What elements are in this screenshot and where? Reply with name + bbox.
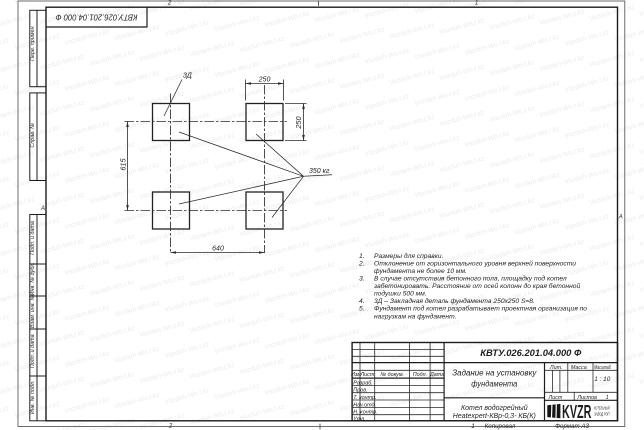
svg-text:Vozduh-Wo.t.kz: Vozduh-Wo.t.kz — [189, 86, 236, 105]
svg-text:Vozduh-Wo.t.kz: Vozduh-Wo.t.kz — [489, 13, 536, 32]
svg-text:Vozduh-Wo.t.kz: Vozduh-Wo.t.kz — [514, 218, 561, 237]
svg-text:Vozduh-Wo.t.kz: Vozduh-Wo.t.kz — [589, 280, 636, 299]
svg-text:Масса: Масса — [571, 365, 587, 371]
svg-text:Vozduh-Wo.t.kz: Vozduh-Wo.t.kz — [364, 47, 411, 66]
svg-text:Vozduh-Wo.t.kz: Vozduh-Wo.t.kz — [64, 28, 111, 47]
svg-text:Vozduh-Wo.t.kz: Vozduh-Wo.t.kz — [214, 383, 261, 402]
svg-text:Vozduh-Wo.t.kz: Vozduh-Wo.t.kz — [39, 421, 86, 430]
svg-text:Vozduh-Wo.t.kz: Vozduh-Wo.t.kz — [489, 197, 536, 216]
svg-text:Перв. примен.: Перв. примен. — [30, 25, 36, 61]
svg-text:Vozduh-Wo.t.kz: Vozduh-Wo.t.kz — [564, 121, 611, 140]
svg-text:В случае отсутствия бетонного: В случае отсутствия бетонного пола, площ… — [374, 275, 567, 283]
svg-text:Vozduh-Wo.t.kz: Vozduh-Wo.t.kz — [239, 311, 286, 330]
svg-text:640: 640 — [212, 245, 224, 252]
svg-text:Vozduh-Wo.t.kz: Vozduh-Wo.t.kz — [489, 243, 536, 262]
svg-text:Vozduh-Wo.t.kz: Vozduh-Wo.t.kz — [614, 71, 644, 90]
svg-text:Vozduh-Wo.t.kz: Vozduh-Wo.t.kz — [589, 142, 636, 161]
svg-text:3Д – Закладная деталь фундамен: 3Д – Закладная деталь фундамента 250х250… — [374, 297, 535, 305]
svg-text:3Д: 3Д — [183, 73, 192, 80]
svg-text:1: 1 — [606, 395, 609, 401]
svg-text:Vozduh-Wo.t.kz: Vozduh-Wo.t.kz — [139, 228, 186, 247]
svg-text:Vozduh-Wo.t.kz: Vozduh-Wo.t.kz — [339, 118, 386, 137]
svg-text:2: 2 — [167, 1, 172, 7]
svg-text:Пров.: Пров. — [353, 388, 367, 394]
svg-text:Vozduh-Wo.t.kz: Vozduh-Wo.t.kz — [539, 192, 586, 211]
svg-text:Vozduh-Wo.t.kz: Vozduh-Wo.t.kz — [114, 254, 161, 273]
svg-text:Vozduh-Wo.t.kz: Vozduh-Wo.t.kz — [564, 29, 611, 48]
svg-text:Vozduh-Wo.t.kz: Vozduh-Wo.t.kz — [489, 59, 536, 78]
svg-text:Котел водогрейный: Котел водогрейный — [461, 404, 528, 412]
svg-text:Vozduh-Wo.t.kz: Vozduh-Wo.t.kz — [64, 350, 111, 369]
svg-text:Vozduh-Wo.t.kz: Vozduh-Wo.t.kz — [114, 116, 161, 135]
svg-text:Vozduh-Wo.t.kz: Vozduh-Wo.t.kz — [0, 37, 11, 56]
svg-text:Vozduh-Wo.t.kz: Vozduh-Wo.t.kz — [414, 181, 461, 200]
svg-text:Нач.отд.: Нач.отд. — [353, 402, 376, 408]
svg-text:Vozduh-Wo.t.kz: Vozduh-Wo.t.kz — [639, 321, 644, 340]
svg-text:Vozduh-Wo.t.kz: Vozduh-Wo.t.kz — [339, 348, 386, 367]
svg-text:фундамента: фундамента — [471, 378, 517, 388]
svg-text:Vozduh-Wo.t.kz: Vozduh-Wo.t.kz — [114, 300, 161, 319]
svg-text:Vozduh-Wo.t.kz: Vozduh-Wo.t.kz — [264, 240, 311, 259]
svg-text:Vozduh-Wo.t.kz: Vozduh-Wo.t.kz — [414, 227, 461, 246]
svg-text:Формат А3: Формат А3 — [555, 423, 589, 430]
svg-text:Vozduh-Wo.t.kz: Vozduh-Wo.t.kz — [139, 136, 186, 155]
svg-text:Vozduh-Wo.t.kz: Vozduh-Wo.t.kz — [139, 274, 186, 293]
svg-text:Vozduh-Wo.t.kz: Vozduh-Wo.t.kz — [189, 362, 236, 381]
svg-text:Vozduh-Wo.t.kz: Vozduh-Wo.t.kz — [214, 153, 261, 172]
svg-text:Vozduh-Wo.t.kz: Vozduh-Wo.t.kz — [639, 0, 644, 18]
svg-text:Vozduh-Wo.t.kz: Vozduh-Wo.t.kz — [314, 328, 361, 347]
svg-text:Vozduh-Wo.t.kz: Vozduh-Wo.t.kz — [114, 70, 161, 89]
svg-text:Vozduh-Wo.t.kz: Vozduh-Wo.t.kz — [289, 307, 336, 326]
svg-text:1: 1 — [475, 1, 478, 7]
svg-text:250: 250 — [258, 76, 271, 83]
svg-text:Vozduh-Wo.t.kz: Vozduh-Wo.t.kz — [314, 98, 361, 117]
svg-text:Дата: Дата — [429, 372, 444, 378]
svg-text:Vozduh-Wo.t.kz: Vozduh-Wo.t.kz — [514, 34, 561, 53]
svg-text:Vozduh-Wo.t.kz: Vozduh-Wo.t.kz — [164, 387, 211, 406]
svg-text:Vozduh-Wo.t.kz: Vozduh-Wo.t.kz — [539, 100, 586, 119]
svg-text:Vozduh-Wo.t.kz: Vozduh-Wo.t.kz — [364, 1, 411, 20]
svg-text:Vozduh-Wo.t.kz: Vozduh-Wo.t.kz — [614, 117, 644, 136]
svg-text:Vozduh-Wo.t.kz: Vozduh-Wo.t.kz — [64, 212, 111, 231]
svg-text:Vozduh-Wo.t.kz: Vozduh-Wo.t.kz — [264, 378, 311, 397]
svg-text:Подп. и дата: Подп. и дата — [30, 221, 36, 255]
svg-text:Vozduh-Wo.t.kz: Vozduh-Wo.t.kz — [389, 68, 436, 87]
svg-text:Vozduh-Wo.t.kz: Vozduh-Wo.t.kz — [189, 132, 236, 151]
svg-text:Vozduh-Wo.t.kz: Vozduh-Wo.t.kz — [114, 24, 161, 43]
svg-text:Vozduh-Wo.t.kz: Vozduh-Wo.t.kz — [589, 50, 636, 69]
svg-text:Vozduh-Wo.t.kz: Vozduh-Wo.t.kz — [639, 91, 644, 110]
svg-text:Vozduh-Wo.t.kz: Vozduh-Wo.t.kz — [114, 392, 161, 411]
svg-text:Vozduh-Wo.t.kz: Vozduh-Wo.t.kz — [639, 183, 644, 202]
svg-text:KVZR: KVZR — [562, 402, 592, 422]
svg-text:Vozduh-Wo.t.kz: Vozduh-Wo.t.kz — [489, 105, 536, 124]
svg-text:Vozduh-Wo.t.kz: Vozduh-Wo.t.kz — [0, 313, 11, 332]
svg-text:Vozduh-Wo.t.kz: Vozduh-Wo.t.kz — [189, 40, 236, 59]
svg-text:фундамента не более 10 мм.: фундамента не более 10 мм. — [374, 267, 467, 275]
svg-text:Vozduh-Wo.t.kz: Vozduh-Wo.t.kz — [389, 160, 436, 179]
svg-text:Vozduh-Wo.t.kz: Vozduh-Wo.t.kz — [264, 56, 311, 75]
svg-text:Копировал: Копировал — [485, 423, 516, 430]
svg-text:Vozduh-Wo.t.kz: Vozduh-Wo.t.kz — [364, 185, 411, 204]
svg-text:Vozduh-Wo.t.kz: Vozduh-Wo.t.kz — [364, 139, 411, 158]
svg-text:Vozduh-Wo.t.kz: Vozduh-Wo.t.kz — [139, 0, 186, 17]
svg-text:Vozduh-Wo.t.kz: Vozduh-Wo.t.kz — [89, 417, 136, 430]
svg-text:Vozduh-Wo.t.kz: Vozduh-Wo.t.kz — [439, 109, 486, 128]
svg-text:Взам. инв. №: Взам. инв. № — [30, 294, 36, 328]
svg-text:Vozduh-Wo.t.kz: Vozduh-Wo.t.kz — [389, 344, 436, 363]
svg-text:Vozduh-Wo.t.kz: Vozduh-Wo.t.kz — [289, 31, 336, 50]
svg-text:Подп.: Подп. — [413, 372, 427, 378]
svg-text:Vozduh-Wo.t.kz: Vozduh-Wo.t.kz — [414, 319, 461, 338]
svg-text:Vozduh-Wo.t.kz: Vozduh-Wo.t.kz — [314, 190, 361, 209]
svg-text:Vozduh-Wo.t.kz: Vozduh-Wo.t.kz — [339, 164, 386, 183]
svg-text:КОТЕЛЬНЫЙ: КОТЕЛЬНЫЙ — [594, 405, 610, 410]
svg-text:Лист: Лист — [359, 372, 374, 378]
svg-text:Vozduh-Wo.t.kz: Vozduh-Wo.t.kz — [464, 0, 511, 11]
svg-text:350 кг: 350 кг — [309, 168, 330, 175]
svg-text:Vozduh-Wo.t.kz: Vozduh-Wo.t.kz — [289, 399, 336, 418]
svg-text:Отклонение от горизонтального: Отклонение от горизонтального уровня вер… — [374, 259, 576, 267]
svg-text:Vozduh-Wo.t.kz: Vozduh-Wo.t.kz — [389, 114, 436, 133]
svg-text:Vozduh-Wo.t.kz: Vozduh-Wo.t.kz — [164, 249, 211, 268]
svg-text:Размеры для справки.: Размеры для справки. — [374, 252, 444, 260]
svg-text:Vozduh-Wo.t.kz: Vozduh-Wo.t.kz — [239, 357, 286, 376]
svg-text:Инв. № дубл.: Инв. № дубл. — [30, 262, 36, 295]
svg-text:Vozduh-Wo.t.kz: Vozduh-Wo.t.kz — [214, 199, 261, 218]
svg-text:Vozduh-Wo.t.kz: Vozduh-Wo.t.kz — [614, 25, 644, 44]
svg-text:А: А — [618, 215, 623, 221]
svg-text:Vozduh-Wo.t.kz: Vozduh-Wo.t.kz — [89, 141, 136, 160]
svg-text:Vozduh-Wo.t.kz: Vozduh-Wo.t.kz — [289, 215, 336, 234]
svg-text:Vozduh-Wo.t.kz: Vozduh-Wo.t.kz — [639, 367, 644, 386]
svg-text:Vozduh-Wo.t.kz: Vozduh-Wo.t.kz — [339, 26, 386, 45]
svg-text:Vozduh-Wo.t.kz: Vozduh-Wo.t.kz — [339, 210, 386, 229]
svg-text:Vozduh-Wo.t.kz: Vozduh-Wo.t.kz — [539, 8, 586, 27]
svg-text:Vozduh-Wo.t.kz: Vozduh-Wo.t.kz — [214, 107, 261, 126]
svg-text:Vozduh-Wo.t.kz: Vozduh-Wo.t.kz — [0, 267, 11, 286]
svg-text:5.: 5. — [359, 306, 365, 313]
svg-text:Vozduh-Wo.t.kz: Vozduh-Wo.t.kz — [589, 96, 636, 115]
svg-text:Vozduh-Wo.t.kz: Vozduh-Wo.t.kz — [189, 316, 236, 335]
svg-text:Подп. и дата: Подп. и дата — [30, 334, 36, 368]
svg-text:Vozduh-Wo.t.kz: Vozduh-Wo.t.kz — [214, 61, 261, 80]
svg-text:Vozduh-Wo.t.kz: Vozduh-Wo.t.kz — [314, 236, 361, 255]
svg-text:Vozduh-Wo.t.kz: Vozduh-Wo.t.kz — [89, 279, 136, 298]
svg-text:Задание на установку: Задание на установку — [452, 367, 537, 377]
svg-text:Vozduh-Wo.t.kz: Vozduh-Wo.t.kz — [464, 222, 511, 241]
svg-text:3.: 3. — [359, 276, 365, 283]
svg-text:Vozduh-Wo.t.kz: Vozduh-Wo.t.kz — [514, 80, 561, 99]
svg-text:Vozduh-Wo.t.kz: Vozduh-Wo.t.kz — [564, 75, 611, 94]
svg-text:Vozduh-Wo.t.kz: Vozduh-Wo.t.kz — [464, 130, 511, 149]
svg-text:Vozduh-Wo.t.kz: Vozduh-Wo.t.kz — [289, 77, 336, 96]
svg-text:Vozduh-Wo.t.kz: Vozduh-Wo.t.kz — [414, 135, 461, 154]
svg-text:Vozduh-Wo.t.kz: Vozduh-Wo.t.kz — [0, 129, 11, 148]
svg-text:1.: 1. — [359, 253, 365, 260]
svg-text:Масштаб: Масштаб — [594, 365, 611, 371]
svg-text:Утв.: Утв. — [352, 416, 365, 422]
svg-text:Vozduh-Wo.t.kz: Vozduh-Wo.t.kz — [89, 187, 136, 206]
svg-text:Vozduh-Wo.t.kz: Vozduh-Wo.t.kz — [239, 403, 286, 422]
svg-text:Фундамент под котел разрабатыв: Фундамент под котел разрабатывает проект… — [374, 305, 587, 313]
svg-text:Vozduh-Wo.t.kz: Vozduh-Wo.t.kz — [639, 229, 644, 248]
svg-text:подушки 500 мм.: подушки 500 мм. — [374, 290, 427, 298]
svg-text:Vozduh-Wo.t.kz: Vozduh-Wo.t.kz — [289, 353, 336, 372]
svg-text:Vozduh-Wo.t.kz: Vozduh-Wo.t.kz — [564, 167, 611, 186]
svg-text:Vozduh-Wo.t.kz: Vozduh-Wo.t.kz — [414, 89, 461, 108]
svg-text:Vozduh-Wo.t.kz: Vozduh-Wo.t.kz — [314, 282, 361, 301]
svg-text:Vozduh-Wo.t.kz: Vozduh-Wo.t.kz — [364, 231, 411, 250]
svg-text:Справ. №: Справ. № — [30, 123, 36, 148]
svg-text:Vozduh-Wo.t.kz: Vozduh-Wo.t.kz — [414, 43, 461, 62]
svg-text:Vozduh-Wo.t.kz: Vozduh-Wo.t.kz — [64, 396, 111, 415]
svg-text:Vozduh-Wo.t.kz: Vozduh-Wo.t.kz — [439, 63, 486, 82]
svg-text:Vozduh-Wo.t.kz: Vozduh-Wo.t.kz — [614, 255, 644, 274]
svg-text:Т. контр.: Т. контр. — [353, 395, 376, 401]
svg-text:КВТУ.026.201.04.000 Ф: КВТУ.026.201.04.000 Ф — [55, 13, 137, 23]
svg-text:Лит.: Лит. — [549, 365, 563, 371]
svg-text:ЗАВОД РЭП: ЗАВОД РЭП — [594, 411, 610, 416]
svg-text:Vozduh-Wo.t.kz: Vozduh-Wo.t.kz — [114, 346, 161, 365]
svg-text:Vozduh-Wo.t.kz: Vozduh-Wo.t.kz — [439, 201, 486, 220]
svg-text:Инв. № подл.: Инв. № подл. — [30, 381, 36, 414]
svg-text:Vozduh-Wo.t.kz: Vozduh-Wo.t.kz — [339, 72, 386, 91]
svg-text:Vozduh-Wo.t.kz: Vozduh-Wo.t.kz — [89, 233, 136, 252]
svg-text:Vozduh-Wo.t.kz: Vozduh-Wo.t.kz — [439, 155, 486, 174]
svg-text:Vozduh-Wo.t.kz: Vozduh-Wo.t.kz — [464, 314, 511, 333]
svg-text:Vozduh-Wo.t.kz: Vozduh-Wo.t.kz — [264, 286, 311, 305]
svg-text:Vozduh-Wo.t.kz: Vozduh-Wo.t.kz — [264, 332, 311, 351]
svg-text:Vozduh-Wo.t.kz: Vozduh-Wo.t.kz — [189, 178, 236, 197]
svg-text:250: 250 — [294, 115, 303, 129]
svg-text:1: 1 — [471, 423, 474, 430]
svg-text:Vozduh-Wo.t.kz: Vozduh-Wo.t.kz — [639, 275, 644, 294]
svg-text:4.: 4. — [359, 298, 365, 305]
svg-text:Vozduh-Wo.t.kz: Vozduh-Wo.t.kz — [139, 44, 186, 63]
svg-text:Vozduh-Wo.t.kz: Vozduh-Wo.t.kz — [189, 408, 236, 427]
svg-text:Vozduh-Wo.t.kz: Vozduh-Wo.t.kz — [514, 172, 561, 191]
svg-text:Vozduh-Wo.t.kz: Vozduh-Wo.t.kz — [464, 176, 511, 195]
svg-text:Vozduh-Wo.t.kz: Vozduh-Wo.t.kz — [539, 330, 586, 349]
svg-text:Vozduh-Wo.t.kz: Vozduh-Wo.t.kz — [464, 84, 511, 103]
svg-text:Vozduh-Wo.t.kz: Vozduh-Wo.t.kz — [0, 405, 11, 424]
svg-text:Vozduh-Wo.t.kz: Vozduh-Wo.t.kz — [589, 234, 636, 253]
svg-text:Vozduh-Wo.t.kz: Vozduh-Wo.t.kz — [439, 17, 486, 36]
svg-text:Vozduh-Wo.t.kz: Vozduh-Wo.t.kz — [264, 10, 311, 29]
svg-text:Vozduh-Wo.t.kz: Vozduh-Wo.t.kz — [564, 213, 611, 232]
svg-text:Vozduh-Wo.t.kz: Vozduh-Wo.t.kz — [189, 0, 236, 13]
svg-text:Vozduh-Wo.t.kz: Vozduh-Wo.t.kz — [89, 371, 136, 390]
svg-text:№ докум.: № докум. — [380, 372, 404, 378]
svg-text:Vozduh-Wo.t.kz: Vozduh-Wo.t.kz — [464, 38, 511, 57]
svg-text:Vozduh-Wo.t.kz: Vozduh-Wo.t.kz — [639, 45, 644, 64]
svg-text:Vozduh-Wo.t.kz: Vozduh-Wo.t.kz — [239, 265, 286, 284]
svg-text:Vozduh-Wo.t.kz: Vozduh-Wo.t.kz — [89, 95, 136, 114]
svg-text:1 : 10: 1 : 10 — [594, 376, 610, 383]
svg-text:Vozduh-Wo.t.kz: Vozduh-Wo.t.kz — [89, 49, 136, 68]
svg-text:Vozduh-Wo.t.kz: Vozduh-Wo.t.kz — [214, 15, 261, 34]
svg-text:Vozduh-Wo.t.kz: Vozduh-Wo.t.kz — [364, 323, 411, 342]
svg-text:КВТУ.026.201.04.000 Ф: КВТУ.026.201.04.000 Ф — [480, 348, 581, 359]
svg-text:Vozduh-Wo.t.kz: Vozduh-Wo.t.kz — [0, 175, 11, 194]
svg-text:Vozduh-Wo.t.kz: Vozduh-Wo.t.kz — [0, 83, 11, 102]
svg-text:Vozduh-Wo.t.kz: Vozduh-Wo.t.kz — [489, 151, 536, 170]
svg-text:Vozduh-Wo.t.kz: Vozduh-Wo.t.kz — [189, 224, 236, 243]
svg-text:Vozduh-Wo.t.kz: Vozduh-Wo.t.kz — [189, 270, 236, 289]
svg-text:Vozduh-Wo.t.kz: Vozduh-Wo.t.kz — [164, 341, 211, 360]
svg-text:Vozduh-Wo.t.kz: Vozduh-Wo.t.kz — [139, 90, 186, 109]
svg-text:Vozduh-Wo.t.kz: Vozduh-Wo.t.kz — [164, 19, 211, 38]
svg-text:Vozduh-Wo.t.kz: Vozduh-Wo.t.kz — [0, 359, 11, 378]
svg-text:Vozduh-Wo.t.kz: Vozduh-Wo.t.kz — [139, 366, 186, 385]
svg-text:Vozduh-Wo.t.kz: Vozduh-Wo.t.kz — [239, 35, 286, 54]
svg-text:2: 2 — [168, 424, 173, 430]
svg-text:Vozduh-Wo.t.kz: Vozduh-Wo.t.kz — [264, 148, 311, 167]
svg-text:Vozduh-Wo.t.kz: Vozduh-Wo.t.kz — [164, 295, 211, 314]
svg-text:Vozduh-Wo.t.kz: Vozduh-Wo.t.kz — [314, 52, 361, 71]
svg-text:Vozduh-Wo.t.kz: Vozduh-Wo.t.kz — [389, 22, 436, 41]
svg-text:Vozduh-Wo.t.kz: Vozduh-Wo.t.kz — [0, 0, 11, 10]
svg-text:Vozduh-Wo.t.kz: Vozduh-Wo.t.kz — [389, 206, 436, 225]
svg-text:Vozduh-Wo.t.kz: Vozduh-Wo.t.kz — [214, 291, 261, 310]
svg-text:Vozduh-Wo.t.kz: Vozduh-Wo.t.kz — [514, 126, 561, 145]
svg-text:Vozduh-Wo.t.kz: Vozduh-Wo.t.kz — [539, 146, 586, 165]
svg-text:Vozduh-Wo.t.kz: Vozduh-Wo.t.kz — [314, 144, 361, 163]
svg-text:Vozduh-Wo.t.kz: Vozduh-Wo.t.kz — [639, 137, 644, 156]
svg-text:Vozduh-Wo.t.kz: Vozduh-Wo.t.kz — [314, 6, 361, 25]
svg-text:Vozduh-Wo.t.kz: Vozduh-Wo.t.kz — [64, 304, 111, 323]
svg-text:Heatexpert-КВр-0,3- КБ(К): Heatexpert-КВр-0,3- КБ(К) — [453, 413, 536, 420]
svg-text:Vozduh-Wo.t.kz: Vozduh-Wo.t.kz — [614, 163, 644, 182]
svg-text:Vozduh-Wo.t.kz: Vozduh-Wo.t.kz — [614, 347, 644, 366]
svg-text:Н. контр.: Н. контр. — [353, 410, 377, 416]
svg-text:Vozduh-Wo.t.kz: Vozduh-Wo.t.kz — [539, 238, 586, 257]
svg-text:Vozduh-Wo.t.kz: Vozduh-Wo.t.kz — [589, 188, 636, 207]
svg-text:Разраб.: Разраб. — [353, 380, 373, 386]
svg-text:Лист: Лист — [548, 395, 563, 401]
svg-text:Vozduh-Wo.t.kz: Vozduh-Wo.t.kz — [289, 261, 336, 280]
svg-text:Vozduh-Wo.t.kz: Vozduh-Wo.t.kz — [614, 301, 644, 320]
svg-text:Vozduh-Wo.t.kz: Vozduh-Wo.t.kz — [539, 54, 586, 73]
svg-text:Vozduh-Wo.t.kz: Vozduh-Wo.t.kz — [64, 258, 111, 277]
svg-text:Vozduh-Wo.t.kz: Vozduh-Wo.t.kz — [214, 337, 261, 356]
svg-text:А: А — [40, 206, 45, 212]
svg-text:Листов: Листов — [576, 395, 597, 401]
svg-text:Vozduh-Wo.t.kz: Vozduh-Wo.t.kz — [89, 325, 136, 344]
svg-text:615: 615 — [119, 157, 128, 170]
svg-text:Vozduh-Wo.t.kz: Vozduh-Wo.t.kz — [0, 221, 11, 240]
svg-text:Vozduh-Wo.t.kz: Vozduh-Wo.t.kz — [364, 93, 411, 112]
svg-text:Vozduh-Wo.t.kz: Vozduh-Wo.t.kz — [64, 120, 111, 139]
svg-text:Vozduh-Wo.t.kz: Vozduh-Wo.t.kz — [64, 74, 111, 93]
svg-text:забетонировать. Расстояние от: забетонировать. Расстояние от осей колон… — [373, 282, 581, 290]
svg-text:2.: 2. — [358, 260, 365, 267]
svg-text:нагрузкам на фундамент.: нагрузкам на фундамент. — [374, 312, 457, 320]
svg-text:Vozduh-Wo.t.kz: Vozduh-Wo.t.kz — [64, 166, 111, 185]
svg-text:Vozduh-Wo.t.kz: Vozduh-Wo.t.kz — [139, 320, 186, 339]
